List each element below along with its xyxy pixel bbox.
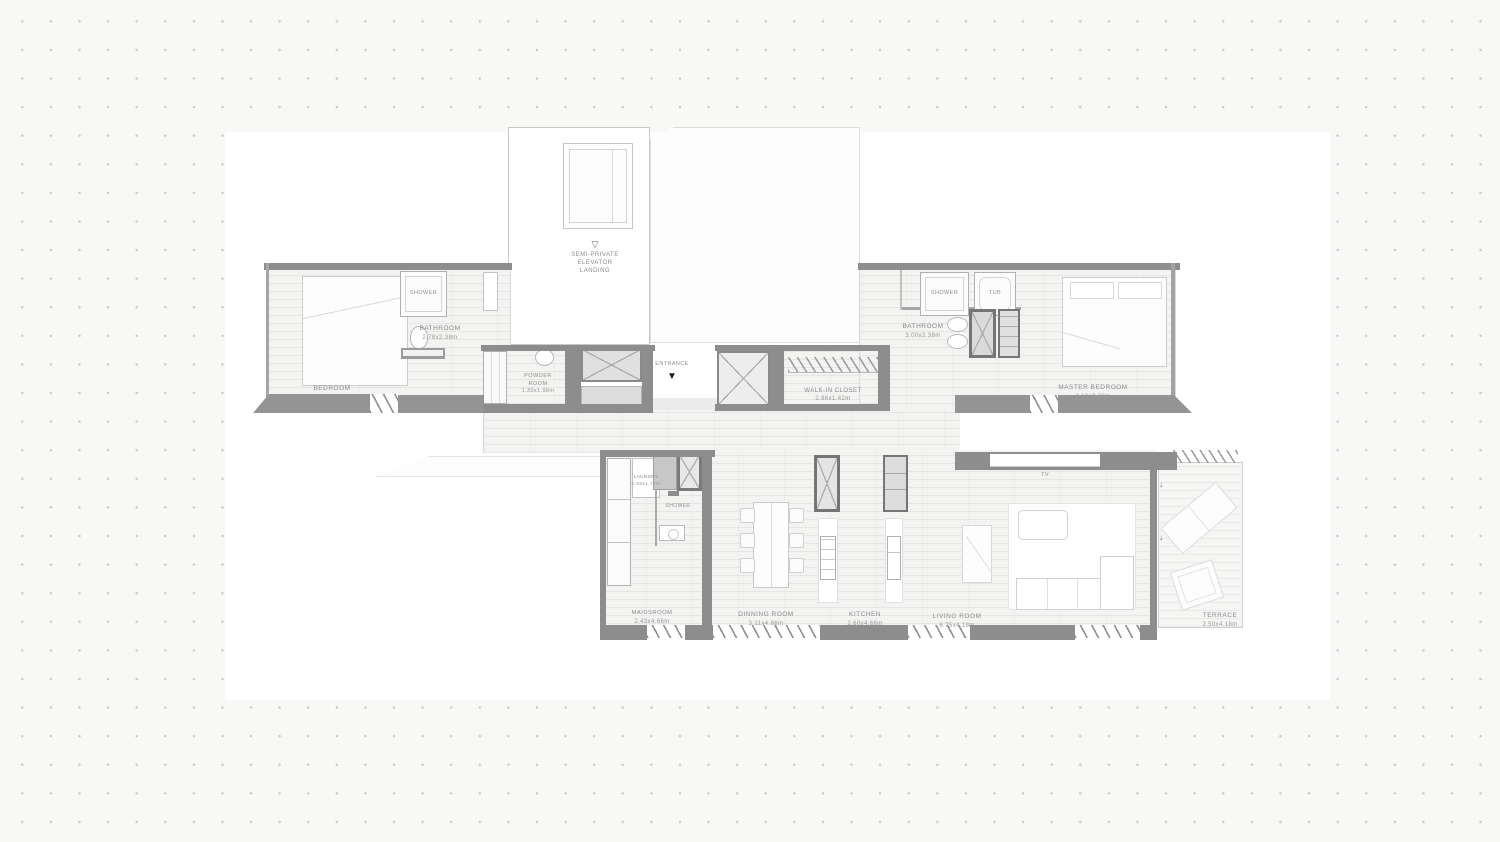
lounge-chair-cushion <box>1177 567 1216 604</box>
laundry-dims: 0.88x1.77m <box>622 482 670 488</box>
vanity-counter <box>403 350 443 356</box>
terrace-door-arrow-icon: ↓ <box>1155 480 1167 489</box>
master-pillow-2 <box>1118 282 1162 299</box>
bathroom-right-label: BATHROOM 3.00x2.38m <box>883 314 963 348</box>
floorplan: ▽ SEMI-PRIVATE ELEVATOR LANDING SHOWER B… <box>250 120 1260 660</box>
sofa-right <box>1100 556 1134 610</box>
closet-left-wall <box>770 348 784 410</box>
powder-room-dims: 1.30x1.98m <box>508 388 568 395</box>
entry-right-wall <box>642 345 653 413</box>
maidsroom-dims: 2.43x4.66m <box>612 618 692 626</box>
entry-cabinet <box>581 386 642 406</box>
powder-room-label: POWDER ROOM 1.30x1.98m <box>508 366 568 403</box>
entry-storage-box <box>581 348 642 382</box>
dinning-room-label: DINNING ROOM 3.11x4.66m <box>716 602 816 636</box>
bathroom-left-partition <box>900 268 902 310</box>
armchair-throw-line <box>966 536 992 573</box>
bedroom-label: BEDROOM 3.53x3.28m <box>282 376 382 410</box>
dining-table <box>753 502 789 588</box>
entrance-label: ENTRANCE <box>642 361 702 367</box>
bed <box>302 276 408 386</box>
bathroom-right-name: BATHROOM <box>902 323 943 330</box>
master-bed-fold-line <box>1062 332 1120 349</box>
left-wing-top-wall <box>264 263 512 270</box>
lower-left-wall <box>600 450 606 640</box>
shower-right-label: SHOWER <box>921 290 968 296</box>
tv-label: TV <box>1015 472 1075 478</box>
entrance-arrow-icon: ▼ <box>656 371 688 382</box>
shower-maid-label: SHOWER <box>654 503 702 509</box>
terrace-door-arrow-icon: ↓ <box>1155 533 1167 542</box>
master-bath-shelves <box>998 309 1020 358</box>
fridge-unit <box>814 455 840 512</box>
maid-sink <box>659 525 685 541</box>
bed-fold-line <box>302 296 408 319</box>
sofa-bottom <box>1016 578 1108 610</box>
kitchen-name: KITCHEN <box>849 611 881 618</box>
living-room-label: LIVING ROOM 6.75x4.18m <box>917 604 997 638</box>
bottom-wall-segment <box>1140 625 1157 640</box>
elevator-landing-label: SEMI-PRIVATE ELEVATOR LANDING <box>545 251 645 275</box>
bathroom-right-dims: 3.00x2.38m <box>883 332 963 340</box>
left-wing-left-wall <box>266 263 269 407</box>
living-room-dims: 6.75x4.18m <box>917 622 997 630</box>
bottom-sliding-door-living-2 <box>1075 625 1140 638</box>
shaft-box <box>717 351 770 406</box>
master-right-wall <box>1171 263 1175 410</box>
right-ledge-1 <box>955 395 1030 413</box>
left-ledge-2 <box>398 395 484 413</box>
dining-chair <box>789 508 804 523</box>
dinning-room-name: DINNING ROOM <box>738 611 793 618</box>
dining-chair <box>740 558 755 573</box>
powder-sink <box>535 349 554 366</box>
walkin-closet-dims: 2.86x1.42m <box>783 395 883 403</box>
bedroom-name: BEDROOM <box>313 385 350 392</box>
corridor-floor <box>483 410 960 453</box>
bathroom-left-name: BATHROOM <box>419 325 460 332</box>
maidsroom-label: MAIDSROOM 2.43x4.66m <box>612 602 692 634</box>
maid-top-wall <box>600 450 715 457</box>
master-bedroom-label: MASTER BEDROOM 4.10x3.28m <box>1033 375 1153 409</box>
roof-edge-outline <box>375 456 603 477</box>
terrace-name: TERRACE <box>1203 612 1238 619</box>
walkin-closet-label: WALK-IN CLOSET 2.86x1.42m <box>783 379 883 411</box>
terrace-label: TERRACE 2.50x4.18m <box>1188 603 1252 637</box>
shower-stall-left: SHOWER <box>400 271 447 317</box>
dining-chair <box>789 558 804 573</box>
closet-left-top <box>483 272 498 311</box>
elevator-arrow-icon: ▽ <box>580 239 610 250</box>
master-top-wall <box>858 263 1180 270</box>
shower-left-label: SHOWER <box>401 290 446 296</box>
terrace-dims: 2.50x4.18m <box>1188 621 1252 629</box>
entry-closet <box>483 351 507 404</box>
maid-shower-wall <box>655 490 657 546</box>
master-bedroom-dims: 4.10x3.28m <box>1033 393 1153 401</box>
maidsroom-name: MAIDSROOM <box>632 610 673 616</box>
walkin-closet-name: WALK-IN CLOSET <box>804 388 861 394</box>
dining-chair <box>740 533 755 548</box>
maid-sink-bowl <box>668 529 679 540</box>
master-pillow-1 <box>1070 282 1114 299</box>
tv-console <box>990 454 1100 467</box>
floorplan-page: { "colors": { "wall": "#8d8d8d", "ledge"… <box>0 0 1500 842</box>
closet-hanger-rail <box>788 357 882 373</box>
kitchen-label: KITCHEN 2.60x4.66m <box>830 602 900 636</box>
elevator-shaft <box>563 143 633 229</box>
shower-stall-right: SHOWER <box>920 272 969 316</box>
coffee-table <box>1018 510 1068 540</box>
elevator-car <box>569 149 627 223</box>
tub-label: TUB <box>975 290 1015 296</box>
laundry-label: LAUNDRY 0.88x1.77m <box>622 469 670 495</box>
bedroom-dims: 3.53x3.28m <box>282 394 382 402</box>
stove <box>820 536 836 580</box>
living-room-name: LIVING ROOM <box>933 613 982 620</box>
bathroom-left-label: BATHROOM 2.78x2.38m <box>400 316 480 350</box>
master-bedroom-name: MASTER BEDROOM <box>1058 384 1127 391</box>
kitchen-dims: 2.60x4.66m <box>830 620 900 628</box>
powder-bottom-wall <box>483 404 653 413</box>
kitchen-sink <box>887 536 901 580</box>
dinning-room-dims: 3.11x4.66m <box>716 620 816 628</box>
maid-divider-wall <box>702 450 712 640</box>
upper-unit-shell <box>650 127 860 343</box>
dining-chair <box>789 533 804 548</box>
dining-chair <box>740 508 755 523</box>
maid-shaft-box <box>677 453 702 491</box>
master-bath-cabinet <box>969 309 996 358</box>
closet-top-wall <box>715 345 890 351</box>
powder-room-name: POWDER ROOM <box>524 373 552 386</box>
master-bed <box>1062 277 1167 367</box>
terrace-top-hatching <box>1172 450 1238 463</box>
kitchen-tall-cabinet <box>883 455 908 512</box>
laundry-name: LAUNDRY <box>634 475 658 480</box>
bathroom-left-dims: 2.78x2.38m <box>400 334 480 342</box>
armchair <box>962 525 992 583</box>
